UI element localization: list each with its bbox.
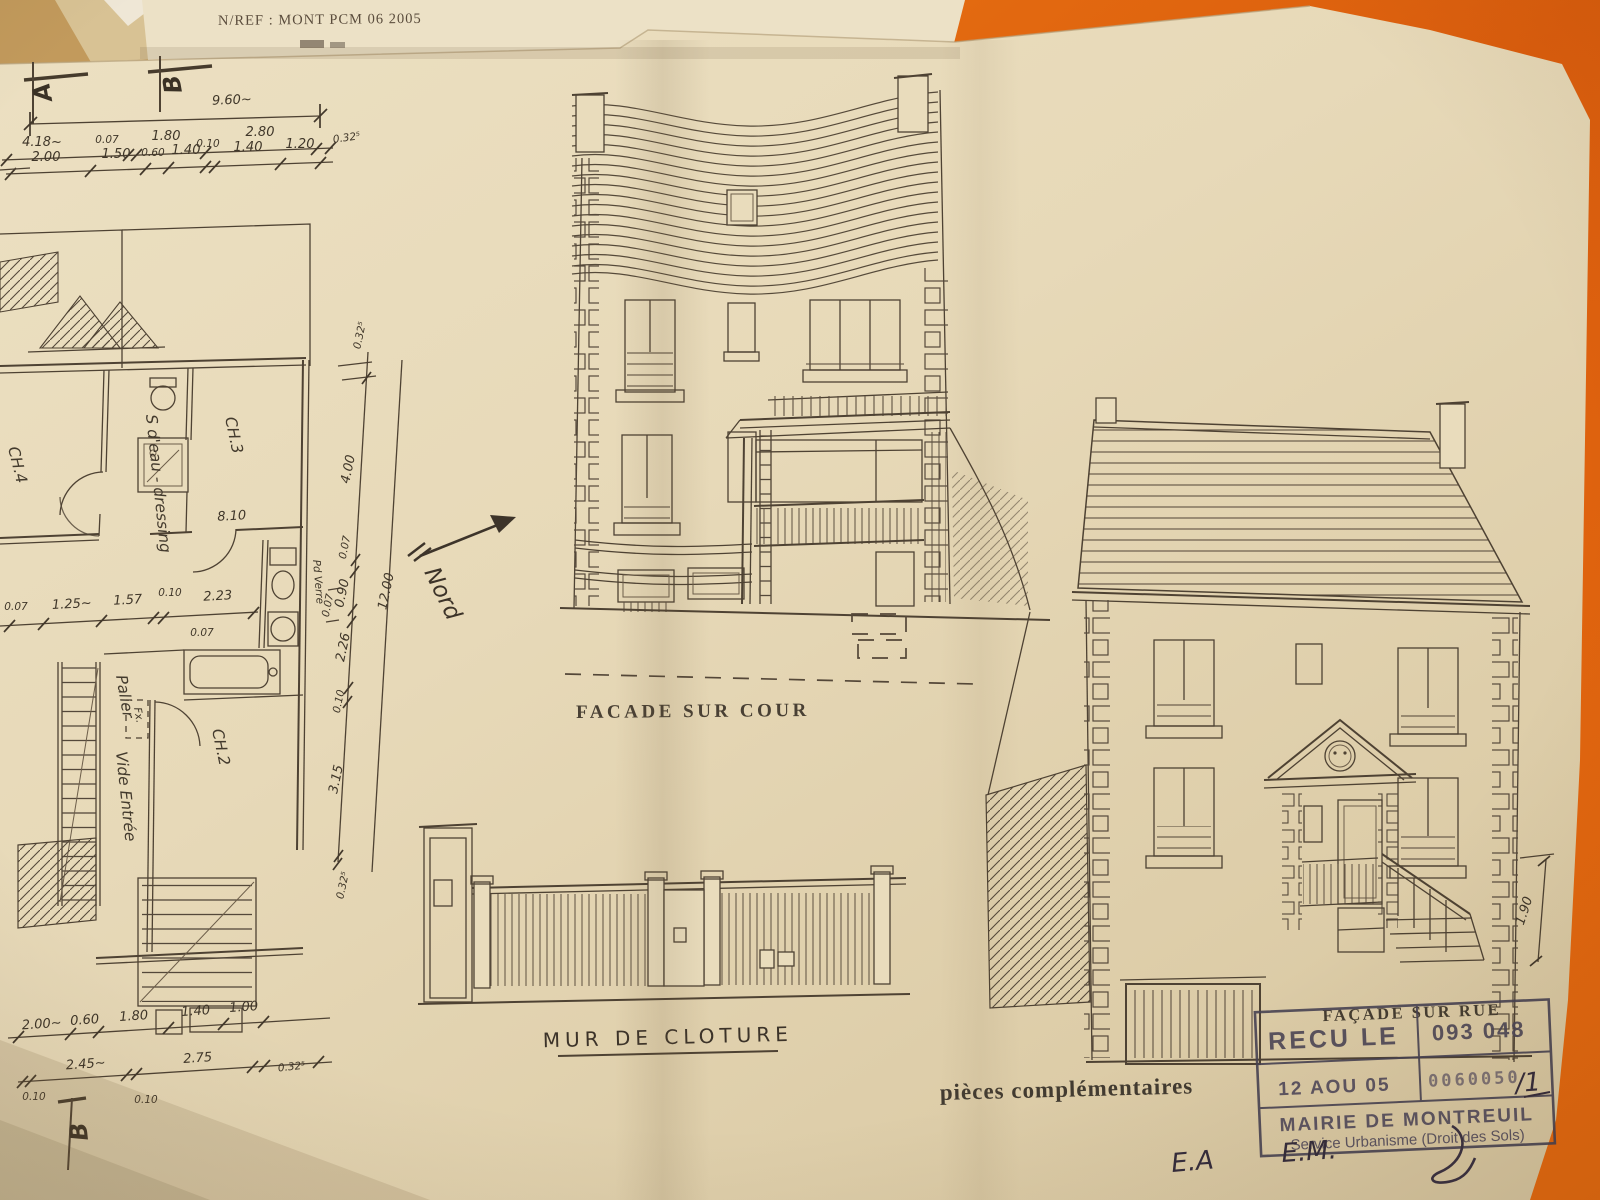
caption-facade-cour: FACADE SUR COUR [576, 700, 810, 723]
dim: 0.60 [70, 1012, 100, 1029]
chimney-left [1096, 398, 1116, 423]
dim: 1.20 [286, 137, 315, 152]
dim: 0.10 [158, 587, 182, 599]
dim: 0.07 [95, 134, 119, 146]
chimney-left [576, 95, 604, 152]
doc-reference: N/REF : MONT PCM 06 2005 [218, 11, 422, 29]
porch-railing [1303, 864, 1377, 904]
stamp-number-2: 0060050 [1428, 1068, 1521, 1092]
dim: 0.07 [4, 601, 28, 613]
dim: 1.50 [102, 147, 131, 162]
pilaster-left [1282, 790, 1302, 930]
gate-detail [760, 950, 774, 968]
chimney-right [898, 76, 928, 132]
dim: 1.40 [234, 140, 263, 155]
dim: 0.07 [190, 627, 214, 639]
quoins-left [574, 158, 599, 606]
dim: 2.80 [246, 125, 275, 140]
dim-810: 8.10 [217, 508, 247, 524]
dim: 1.80 [119, 1008, 149, 1025]
garage-door [1120, 977, 1266, 1064]
fence-panel [490, 894, 648, 986]
dim: 2.23 [203, 588, 233, 604]
stamp-number-1: 093 048 [1431, 1016, 1526, 1045]
fence-panel [720, 893, 874, 985]
initials-em: E.M. [1280, 1135, 1337, 1169]
dim: 1.57 [113, 592, 143, 609]
ink-smudge [330, 42, 345, 48]
stamp-recu-le: RECU LE [1268, 1022, 1400, 1056]
dim: 1.25~ [52, 596, 93, 613]
dim: 2.00 [32, 150, 61, 165]
quoins-right [1492, 612, 1518, 1060]
hatched-section [986, 765, 1090, 1008]
dim-total: 9.60~ [212, 92, 252, 108]
ink-smudge [300, 40, 324, 48]
section-marker-b-bottom: B [64, 1121, 94, 1142]
stair-hatch [18, 838, 96, 928]
gate [664, 890, 704, 986]
dim: 4.18~ [22, 135, 62, 150]
dim: 1.80 [152, 129, 181, 144]
initials-ea: E.A [1170, 1145, 1215, 1179]
dim: 2.00~ [21, 1016, 62, 1034]
blueprint-photo: N/REF : MONT PCM 06 2005 A B 9.60~ 4.18~… [0, 0, 1600, 1200]
dim: 2.75 [183, 1050, 213, 1067]
dim: 0.10 [22, 1091, 46, 1103]
dim: 0.10 [134, 1094, 158, 1106]
dim: 0.10 [196, 138, 220, 150]
dim: 2.45~ [65, 1056, 106, 1074]
photo-of-architectural-drawing: N/REF : MONT PCM 06 2005 A B 9.60~ 4.18~… [0, 0, 1600, 1200]
dim: 1.00 [229, 999, 259, 1016]
dim: 1.40 [181, 1003, 211, 1020]
chimney-right [1440, 404, 1465, 468]
dim: 0.60 [141, 147, 165, 159]
gate-detail [778, 952, 794, 966]
